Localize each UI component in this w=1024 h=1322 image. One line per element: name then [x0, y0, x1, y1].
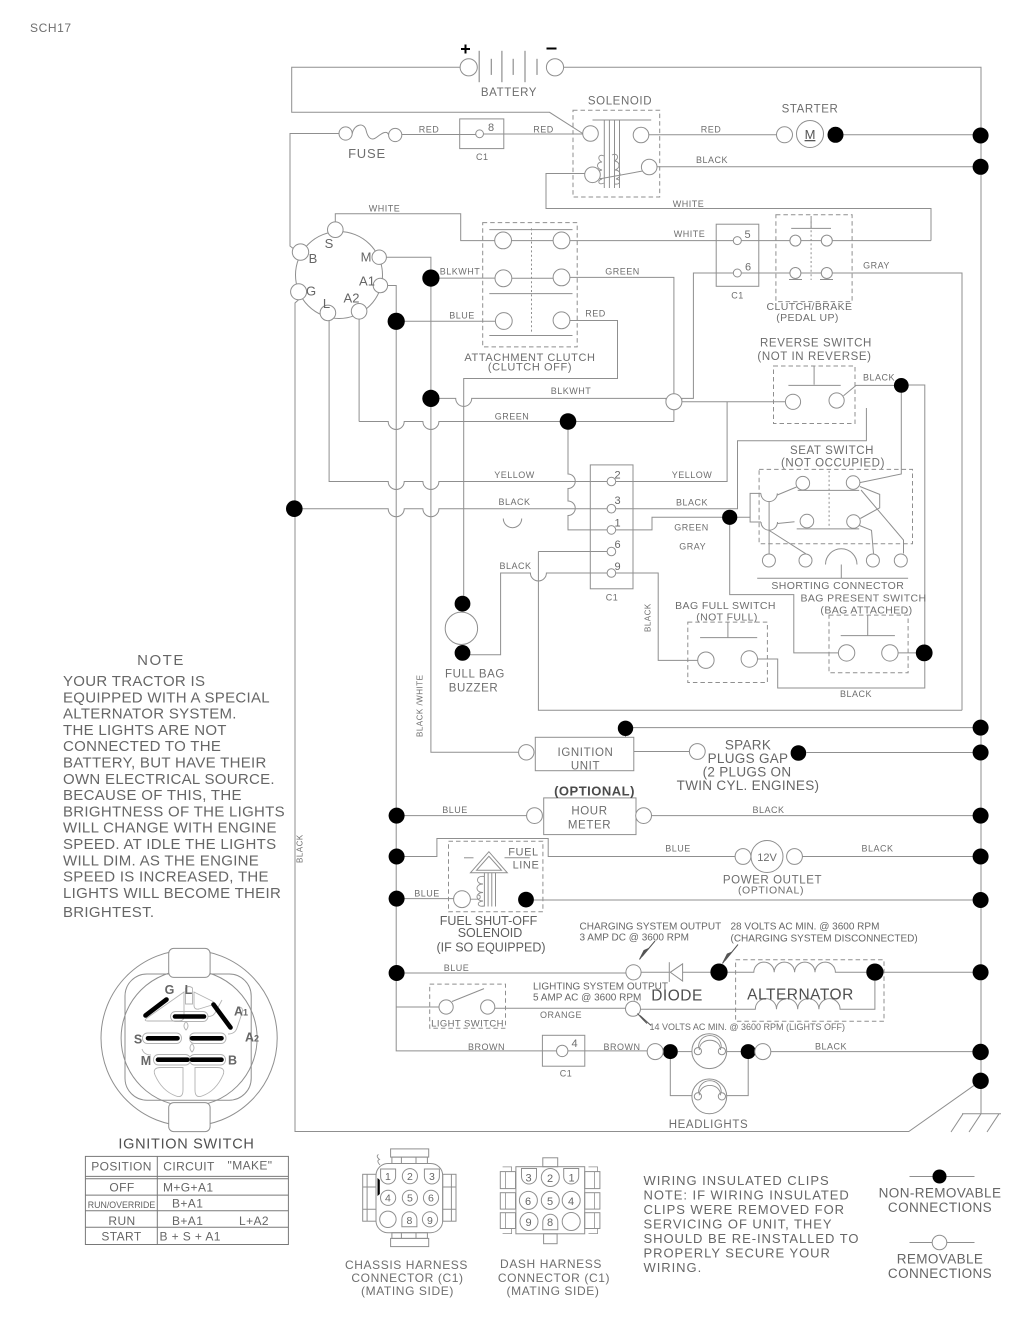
svg-text:BAG PRESENT SWITCH: BAG PRESENT SWITCH [800, 593, 926, 605]
svg-text:S: S [325, 236, 334, 251]
svg-text:CONNECTIONS: CONNECTIONS [888, 1200, 992, 1215]
svg-text:(NOT IN REVERSE): (NOT IN REVERSE) [757, 351, 871, 363]
svg-text:L+A2: L+A2 [239, 1214, 269, 1228]
svg-text:BLACK: BLACK [644, 603, 653, 632]
svg-text:BLUE: BLUE [414, 889, 440, 899]
svg-text:"MAKE": "MAKE" [228, 1159, 273, 1173]
svg-text:2: 2 [407, 1171, 413, 1183]
svg-text:6: 6 [525, 1196, 531, 1208]
svg-text:LINE: LINE [513, 860, 540, 872]
svg-text:SHORTING CONNECTOR: SHORTING CONNECTOR [771, 580, 904, 592]
svg-text:GRAY: GRAY [863, 261, 890, 271]
svg-text:(OPTIONAL): (OPTIONAL) [738, 885, 804, 897]
svg-text:REMOVABLE: REMOVABLE [897, 1252, 984, 1267]
svg-text:A1: A1 [359, 274, 375, 289]
svg-text:BLACK /WHITE: BLACK /WHITE [416, 675, 425, 737]
svg-text:6: 6 [615, 539, 621, 551]
svg-text:THE LIGHTS ARE NOT: THE LIGHTS ARE NOT [63, 722, 227, 739]
svg-text:RUN/OVERRIDE: RUN/OVERRIDE [88, 1200, 156, 1210]
svg-text:28 VOLTS AC MIN. @ 3600 RPM: 28 VOLTS AC MIN. @ 3600 RPM [731, 922, 880, 933]
svg-text:RUN: RUN [108, 1214, 135, 1228]
svg-text:CONNECTOR (C1): CONNECTOR (C1) [498, 1271, 610, 1285]
svg-text:CHARGING SYSTEM OUTPUT: CHARGING SYSTEM OUTPUT [580, 922, 722, 933]
svg-text:S: S [134, 1033, 142, 1047]
svg-text:RED: RED [585, 309, 606, 319]
svg-text:GREEN: GREEN [674, 523, 709, 533]
svg-text:CLIPS WERE REMOVED FOR: CLIPS WERE REMOVED FOR [644, 1202, 845, 1217]
svg-text:BROWN: BROWN [604, 1042, 641, 1052]
svg-text:BLUE: BLUE [444, 963, 470, 973]
svg-text:B + S + A1: B + S + A1 [160, 1230, 221, 1244]
svg-text:BLKWHT: BLKWHT [551, 386, 592, 396]
svg-text:SEAT SWITCH: SEAT SWITCH [790, 445, 874, 457]
svg-text:NOTE: IF WIRING INSULATED: NOTE: IF WIRING INSULATED [644, 1188, 850, 1203]
svg-text:HOUR: HOUR [571, 806, 607, 818]
svg-text:1: 1 [569, 1173, 575, 1185]
svg-text:BLUE: BLUE [442, 805, 468, 815]
svg-text:(MATING SIDE): (MATING SIDE) [507, 1284, 600, 1298]
svg-text:L: L [185, 983, 193, 997]
svg-text:SHOULD BE RE-INSTALLED TO: SHOULD BE RE-INSTALLED TO [644, 1231, 860, 1246]
svg-text:WHITE: WHITE [674, 229, 706, 239]
svg-text:4: 4 [385, 1193, 391, 1205]
svg-text:5 AMP AC @ 3600 RPM: 5 AMP AC @ 3600 RPM [533, 993, 641, 1004]
svg-text:CONNECTIONS: CONNECTIONS [888, 1266, 992, 1281]
svg-text:(IF SO EQUIPPED): (IF SO EQUIPPED) [436, 941, 545, 955]
svg-text:EQUIPPED WITH A SPECIAL: EQUIPPED WITH A SPECIAL [63, 689, 270, 706]
svg-text:A2: A2 [245, 1031, 259, 1045]
svg-text:TWIN CYL. ENGINES): TWIN CYL. ENGINES) [677, 778, 820, 793]
svg-text:M: M [141, 1054, 151, 1068]
svg-text:GRAY: GRAY [679, 542, 706, 552]
svg-text:ALTERNATOR SYSTEM.: ALTERNATOR SYSTEM. [63, 706, 237, 723]
svg-text:NON-REMOVABLE: NON-REMOVABLE [879, 1186, 1002, 1201]
svg-text:9: 9 [526, 1217, 532, 1229]
svg-text:STARTER: STARTER [782, 104, 839, 116]
svg-text:(NOT FULL): (NOT FULL) [696, 612, 758, 624]
svg-text:3 AMP DC @ 3600 RPM: 3 AMP DC @ 3600 RPM [580, 933, 689, 944]
svg-text:DIODE: DIODE [651, 988, 703, 1005]
svg-text:YELLOW: YELLOW [672, 470, 713, 480]
svg-text:8: 8 [547, 1217, 553, 1229]
svg-text:GREEN: GREEN [605, 267, 640, 277]
svg-text:M+G+A1: M+G+A1 [163, 1181, 213, 1195]
svg-text:LIGHTS WILL BECOME THEIR: LIGHTS WILL BECOME THEIR [63, 885, 281, 902]
svg-text:A2: A2 [344, 291, 360, 306]
svg-text:CIRCUIT: CIRCUIT [163, 1160, 215, 1174]
svg-text:BLACK: BLACK [840, 689, 872, 699]
svg-text:RED: RED [701, 125, 722, 135]
svg-text:(NOT OCCUPIED): (NOT OCCUPIED) [781, 458, 885, 470]
svg-text:5: 5 [407, 1193, 413, 1205]
svg-text:(MATING SIDE): (MATING SIDE) [361, 1284, 454, 1298]
svg-text:BATTERY, BUT HAVE THEIR: BATTERY, BUT HAVE THEIR [63, 755, 267, 772]
svg-text:M: M [805, 127, 816, 142]
svg-text:HEADLIGHTS: HEADLIGHTS [669, 1119, 749, 1131]
svg-text:ORANGE: ORANGE [540, 1010, 582, 1020]
svg-text:WHITE: WHITE [369, 204, 401, 214]
svg-text:LIGHT SWITCH: LIGHT SWITCH [431, 1019, 504, 1030]
svg-text:CHASSIS HARNESS: CHASSIS HARNESS [345, 1258, 468, 1272]
svg-text:12V: 12V [757, 852, 777, 864]
svg-text:4: 4 [568, 1196, 574, 1208]
svg-text:UNIT: UNIT [571, 761, 600, 773]
svg-text:LIGHTING SYSTEM OUTPUT: LIGHTING SYSTEM OUTPUT [533, 982, 668, 993]
svg-text:NOTE: NOTE [137, 652, 185, 669]
svg-text:BRIGHTEST.: BRIGHTEST. [63, 904, 154, 921]
svg-text:BLACK: BLACK [863, 373, 895, 383]
svg-text:FULL BAG: FULL BAG [445, 669, 505, 681]
svg-text:(CLUTCH OFF): (CLUTCH OFF) [488, 362, 572, 374]
svg-text:DASH HARNESS: DASH HARNESS [500, 1257, 602, 1271]
svg-text:(PEDAL UP): (PEDAL UP) [776, 312, 839, 324]
svg-text:BRIGHTNESS OF THE LIGHTS: BRIGHTNESS OF THE LIGHTS [63, 803, 285, 820]
svg-text:8: 8 [407, 1215, 413, 1227]
svg-text:BATTERY: BATTERY [481, 87, 537, 99]
svg-text:1: 1 [615, 518, 621, 530]
svg-text:M: M [361, 250, 372, 265]
svg-text:5: 5 [745, 229, 751, 241]
svg-text:BLUE: BLUE [449, 311, 475, 321]
svg-text:BLACK: BLACK [861, 844, 893, 854]
svg-text:WILL DIM. AS THE ENGINE: WILL DIM. AS THE ENGINE [63, 852, 259, 869]
svg-text:BLACK: BLACK [696, 155, 728, 165]
svg-text:C1: C1 [731, 291, 744, 301]
svg-text:FUSE: FUSE [348, 146, 386, 161]
svg-text:SOLENOID: SOLENOID [588, 96, 652, 108]
svg-text:SOLENOID: SOLENOID [458, 926, 523, 940]
svg-text:BLACK: BLACK [499, 561, 531, 571]
svg-text:4: 4 [572, 1038, 578, 1050]
svg-text:(BAG ATTACHED): (BAG ATTACHED) [820, 605, 912, 617]
svg-text:L: L [323, 296, 330, 311]
svg-text:A1: A1 [234, 1005, 248, 1019]
svg-text:9: 9 [427, 1215, 433, 1227]
svg-text:BROWN: BROWN [468, 1042, 505, 1052]
svg-text:14 VOLTS AC MIN. @ 3600 RPM (L: 14 VOLTS AC MIN. @ 3600 RPM (LIGHTS OFF) [650, 1022, 846, 1032]
svg-text:SPEED IS INCREASED, THE: SPEED IS INCREASED, THE [63, 869, 269, 886]
svg-text:WHITE: WHITE [673, 199, 705, 209]
svg-text:BLACK: BLACK [498, 497, 530, 507]
svg-text:B: B [309, 251, 318, 266]
svg-text:B+A1: B+A1 [172, 1197, 203, 1211]
svg-text:SCH17: SCH17 [30, 21, 72, 35]
svg-text:BUZZER: BUZZER [449, 683, 499, 695]
svg-text:OWN ELECTRICAL SOURCE.: OWN ELECTRICAL SOURCE. [63, 771, 275, 788]
svg-text:PROPERLY SECURE YOUR: PROPERLY SECURE YOUR [644, 1246, 831, 1261]
svg-text:BLACK: BLACK [815, 1042, 847, 1052]
svg-text:C1: C1 [606, 593, 619, 603]
svg-text:BLKWHT: BLKWHT [440, 267, 481, 277]
svg-text:BLUE: BLUE [665, 844, 691, 854]
svg-text:START: START [101, 1230, 141, 1244]
svg-text:6: 6 [428, 1193, 434, 1205]
svg-text:WIRING.: WIRING. [644, 1260, 703, 1275]
svg-text:RED: RED [419, 125, 440, 135]
svg-text:POSITION: POSITION [91, 1160, 152, 1174]
svg-text:METER: METER [568, 820, 611, 832]
svg-text:G: G [165, 983, 175, 997]
svg-text:YELLOW: YELLOW [494, 470, 535, 480]
svg-text:C1: C1 [560, 1069, 573, 1079]
svg-text:B+A1: B+A1 [172, 1214, 203, 1228]
svg-text:3: 3 [615, 495, 621, 507]
svg-text:(CHARGING SYSTEM DISCONNECTED): (CHARGING SYSTEM DISCONNECTED) [731, 934, 918, 945]
svg-text:YOUR TRACTOR IS: YOUR TRACTOR IS [63, 673, 205, 690]
svg-text:WIRING INSULATED CLIPS: WIRING INSULATED CLIPS [644, 1173, 830, 1188]
svg-text:ALTERNATOR: ALTERNATOR [747, 987, 854, 1004]
svg-text:SPEED. AT IDLE THE LIGHTS: SPEED. AT IDLE THE LIGHTS [63, 836, 276, 853]
svg-text:8: 8 [488, 122, 494, 134]
svg-text:SERVICING OF UNIT, THEY: SERVICING OF UNIT, THEY [644, 1217, 833, 1232]
svg-text:BECAUSE OF THIS, THE: BECAUSE OF THIS, THE [63, 787, 242, 804]
svg-text:3: 3 [429, 1171, 435, 1183]
svg-text:CONNECTED TO THE: CONNECTED TO THE [63, 738, 221, 755]
svg-text:RED: RED [533, 125, 554, 135]
svg-text:C1: C1 [476, 152, 489, 162]
svg-text:B: B [228, 1054, 237, 1068]
svg-text:BLACK: BLACK [296, 834, 305, 863]
svg-text:(OPTIONAL): (OPTIONAL) [554, 784, 635, 799]
svg-text:CONNECTOR (C1): CONNECTOR (C1) [351, 1271, 463, 1285]
svg-text:REVERSE SWITCH: REVERSE SWITCH [760, 338, 872, 350]
svg-text:G: G [306, 284, 316, 299]
svg-text:FUEL: FUEL [508, 847, 539, 859]
svg-text:3: 3 [526, 1173, 532, 1185]
svg-text:IGNITION: IGNITION [558, 747, 614, 759]
svg-text:GREEN: GREEN [495, 412, 530, 422]
svg-text:6: 6 [745, 262, 751, 274]
svg-text:OFF: OFF [109, 1181, 134, 1195]
svg-text:IGNITION SWITCH: IGNITION SWITCH [118, 1137, 254, 1153]
svg-text:WILL CHANGE WITH ENGINE: WILL CHANGE WITH ENGINE [63, 820, 277, 837]
svg-text:9: 9 [615, 561, 621, 573]
svg-text:2: 2 [547, 1173, 553, 1185]
svg-text:BLACK: BLACK [676, 498, 708, 508]
svg-text:BAG FULL SWITCH: BAG FULL SWITCH [675, 600, 776, 612]
svg-text:1: 1 [385, 1171, 391, 1183]
svg-text:2: 2 [615, 470, 621, 482]
svg-text:BLACK: BLACK [752, 805, 784, 815]
svg-text:5: 5 [547, 1196, 553, 1208]
